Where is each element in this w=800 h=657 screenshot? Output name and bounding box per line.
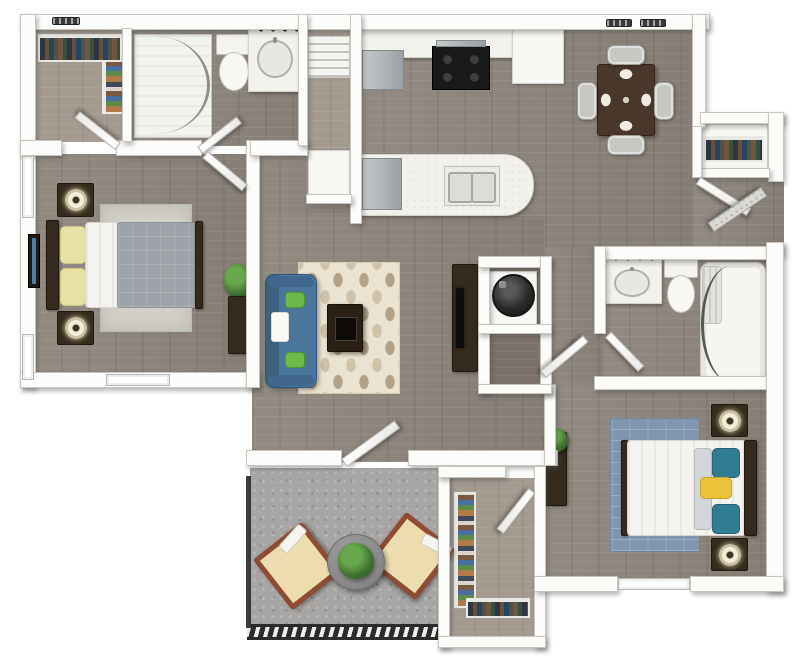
closet2-hanging-clothes-left (454, 492, 476, 608)
wall-closet2-left (438, 466, 450, 648)
bed1-duvet (117, 222, 197, 308)
dining-chair-north (607, 45, 645, 65)
floorplan-stage (0, 0, 800, 657)
wall-right-upper (768, 112, 784, 182)
wall-bath2-left (594, 246, 606, 334)
window-bedroom2-bottom (618, 578, 690, 590)
kitchen-dishwasher (362, 158, 402, 210)
patio-railing-left (246, 476, 251, 628)
tv (456, 288, 464, 348)
wall-right-lower (766, 242, 784, 592)
nightstand-bed1-top (57, 183, 94, 217)
wall-coat-closet-left (692, 126, 702, 178)
vent-dining-right (640, 19, 666, 27)
vent-dining-left (606, 19, 632, 27)
patio-railing-bottom (247, 624, 442, 640)
wall-linen-bottom (306, 194, 352, 204)
wall-closet2-right (534, 466, 546, 648)
wall-dining-right (692, 14, 706, 128)
dining-chair-west (577, 82, 597, 120)
patio-plant (338, 543, 374, 579)
closet1-hanging-clothes-side (102, 60, 124, 114)
sink-bathroom-2 (610, 266, 654, 300)
toilet-bathroom-2 (663, 258, 697, 312)
window-bedroom1-left-bottom (22, 334, 34, 380)
wall-left-upper (20, 14, 36, 146)
water-heater (492, 274, 535, 317)
wall-closet2-bottom (438, 636, 546, 648)
wall-bedroom1-right (246, 140, 260, 388)
wall-closet2-top (438, 466, 506, 478)
wall-utility-middle (478, 324, 552, 334)
nightstand-bed2-bottom (711, 538, 748, 571)
wall-living-bottom-right (408, 450, 558, 466)
wall-bath1-right (298, 14, 308, 146)
window-bedroom1-bottom (106, 374, 170, 386)
coat-closet-hanging-clothes (704, 136, 764, 162)
bed2-pillow-teal-bottom (712, 504, 740, 534)
wall-row-closet1-b (116, 140, 202, 156)
bed2-pillow-gold (700, 477, 732, 499)
kitchen-oven-stainless (362, 50, 404, 90)
wall-art-bedroom-1 (28, 234, 40, 288)
dining-chair-east (654, 82, 674, 120)
bed2-pillow-teal-top (712, 448, 740, 478)
wall-corridor-living (544, 384, 556, 466)
vent-top-left (52, 17, 80, 25)
wall-bedroom2-bottom-right (690, 576, 784, 592)
linen-closet-wire-shelf (308, 36, 350, 78)
nightstand-bed2-top (711, 404, 748, 437)
wall-closet1-bath-divider (122, 28, 132, 142)
kitchen-fridge (512, 26, 564, 84)
bed1-sheet (85, 222, 119, 308)
wall-bath2-top (594, 246, 770, 260)
bed1-footboard (195, 221, 203, 309)
coffee-table (327, 304, 363, 352)
wall-bedroom2-bottom-left (534, 576, 618, 592)
sink-bathroom-1 (253, 36, 297, 82)
sofa-white-throw (271, 312, 289, 342)
closet2-hanging-clothes-bottom (466, 598, 530, 618)
sofa-pillow-green-bottom (285, 352, 305, 368)
wall-living-bottom-left (246, 450, 342, 466)
wall-linen-right (350, 14, 362, 224)
linen-closet-cabinet (308, 150, 350, 196)
dining-table (597, 64, 655, 136)
bed1-headboard (46, 220, 59, 310)
bed1-pillow-top (60, 226, 86, 264)
toilet-bathroom-1 (215, 34, 251, 90)
nightstand-bed1-bottom (57, 311, 94, 345)
wall-utility-bottom (478, 384, 552, 394)
kitchen-range-hood (436, 40, 486, 47)
closet1-hanging-clothes-top (38, 34, 122, 62)
bed2-headboard (744, 440, 757, 536)
wall-row-closet1-a (20, 140, 62, 156)
kitchen-range (432, 46, 490, 90)
dining-chair-south (607, 135, 645, 155)
wall-coat-closet-bottom (692, 168, 770, 178)
window-bedroom1-left-top (22, 156, 34, 218)
wall-bath2-bottom (594, 376, 770, 390)
sofa-pillow-green-top (285, 292, 305, 308)
kitchen-double-sink (444, 166, 500, 206)
bed1-pillow-bottom (60, 268, 86, 306)
